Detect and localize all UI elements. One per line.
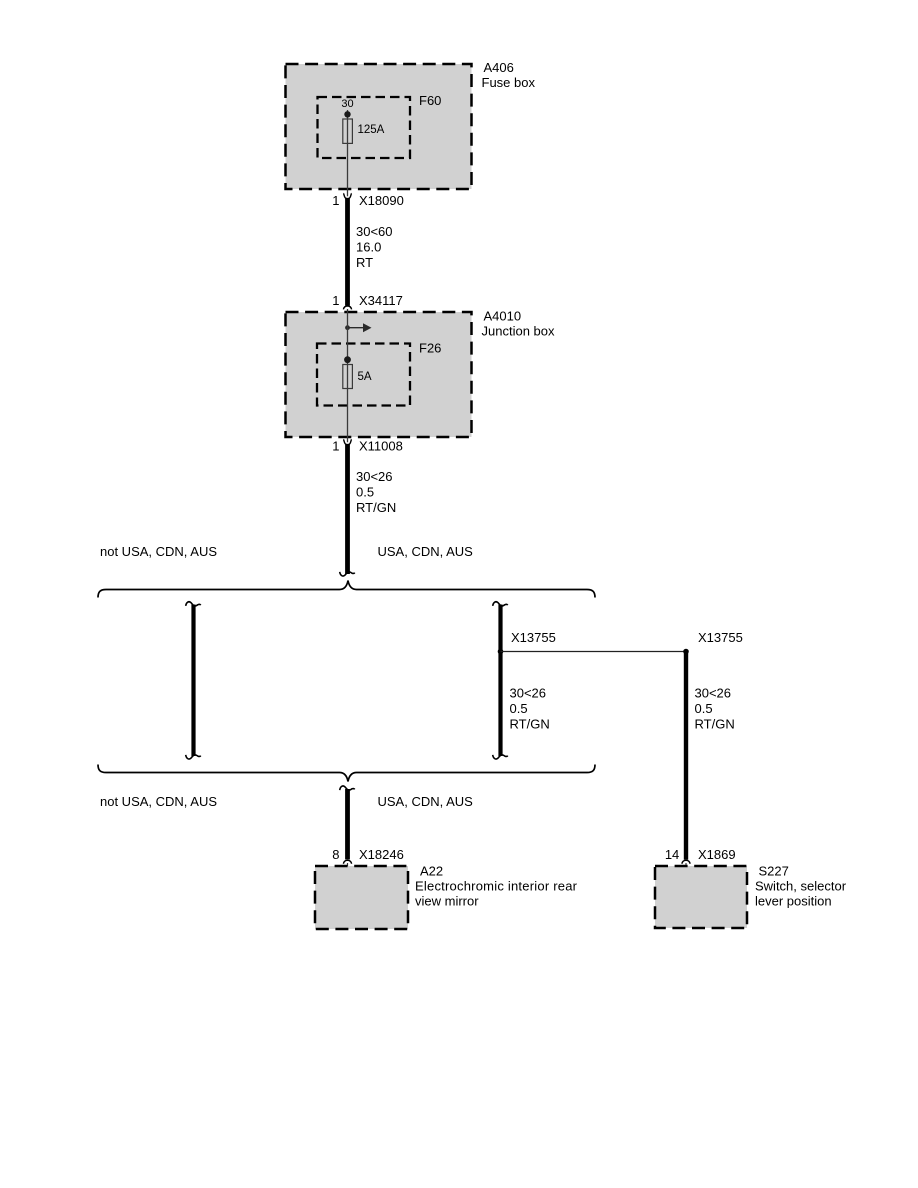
svg-text:X13755: X13755 bbox=[511, 630, 556, 645]
svg-text:lever position: lever position bbox=[755, 894, 832, 909]
svg-text:S227: S227 bbox=[759, 863, 789, 878]
svg-text:1: 1 bbox=[332, 439, 339, 454]
svg-text:A406: A406 bbox=[484, 60, 514, 75]
svg-text:RT/GN: RT/GN bbox=[356, 500, 396, 515]
svg-text:A22: A22 bbox=[420, 863, 443, 878]
svg-text:30<26: 30<26 bbox=[510, 686, 547, 701]
svg-text:14: 14 bbox=[665, 847, 679, 862]
svg-text:0.5: 0.5 bbox=[356, 485, 374, 500]
svg-text:30<26: 30<26 bbox=[356, 469, 393, 484]
svg-text:30<26: 30<26 bbox=[695, 686, 732, 701]
svg-text:5A: 5A bbox=[358, 371, 372, 383]
svg-text:X18090: X18090 bbox=[359, 193, 404, 208]
svg-text:8: 8 bbox=[332, 847, 339, 862]
svg-text:RT: RT bbox=[356, 255, 373, 270]
svg-text:Junction box: Junction box bbox=[482, 324, 555, 339]
svg-text:not USA, CDN, AUS: not USA, CDN, AUS bbox=[100, 544, 217, 559]
svg-text:Switch, selector: Switch, selector bbox=[755, 879, 847, 894]
svg-text:not USA, CDN, AUS: not USA, CDN, AUS bbox=[100, 794, 217, 809]
svg-text:USA, CDN, AUS: USA, CDN, AUS bbox=[378, 794, 474, 809]
svg-text:16.0: 16.0 bbox=[356, 240, 381, 255]
svg-text:1: 1 bbox=[332, 193, 339, 208]
svg-text:F26: F26 bbox=[419, 341, 441, 356]
svg-text:Electrochromic interior rear: Electrochromic interior rear bbox=[415, 879, 578, 894]
svg-text:X11008: X11008 bbox=[359, 439, 403, 454]
svg-text:30: 30 bbox=[341, 98, 353, 110]
svg-text:Fuse box: Fuse box bbox=[482, 75, 536, 90]
svg-text:0.5: 0.5 bbox=[510, 701, 528, 716]
svg-text:0.5: 0.5 bbox=[695, 701, 713, 716]
svg-text:1: 1 bbox=[332, 293, 339, 308]
svg-text:A4010: A4010 bbox=[484, 309, 522, 324]
svg-text:125A: 125A bbox=[358, 124, 385, 136]
svg-text:view mirror: view mirror bbox=[415, 894, 479, 909]
svg-text:30<60: 30<60 bbox=[356, 224, 393, 239]
svg-text:RT/GN: RT/GN bbox=[695, 717, 735, 732]
svg-text:USA, CDN, AUS: USA, CDN, AUS bbox=[378, 544, 474, 559]
svg-text:X34117: X34117 bbox=[359, 293, 403, 308]
svg-text:RT/GN: RT/GN bbox=[510, 717, 550, 732]
svg-text:X18246: X18246 bbox=[359, 847, 404, 862]
svg-text:X1869: X1869 bbox=[698, 847, 736, 862]
svg-text:F60: F60 bbox=[419, 93, 441, 108]
svg-text:X13755: X13755 bbox=[698, 630, 743, 645]
